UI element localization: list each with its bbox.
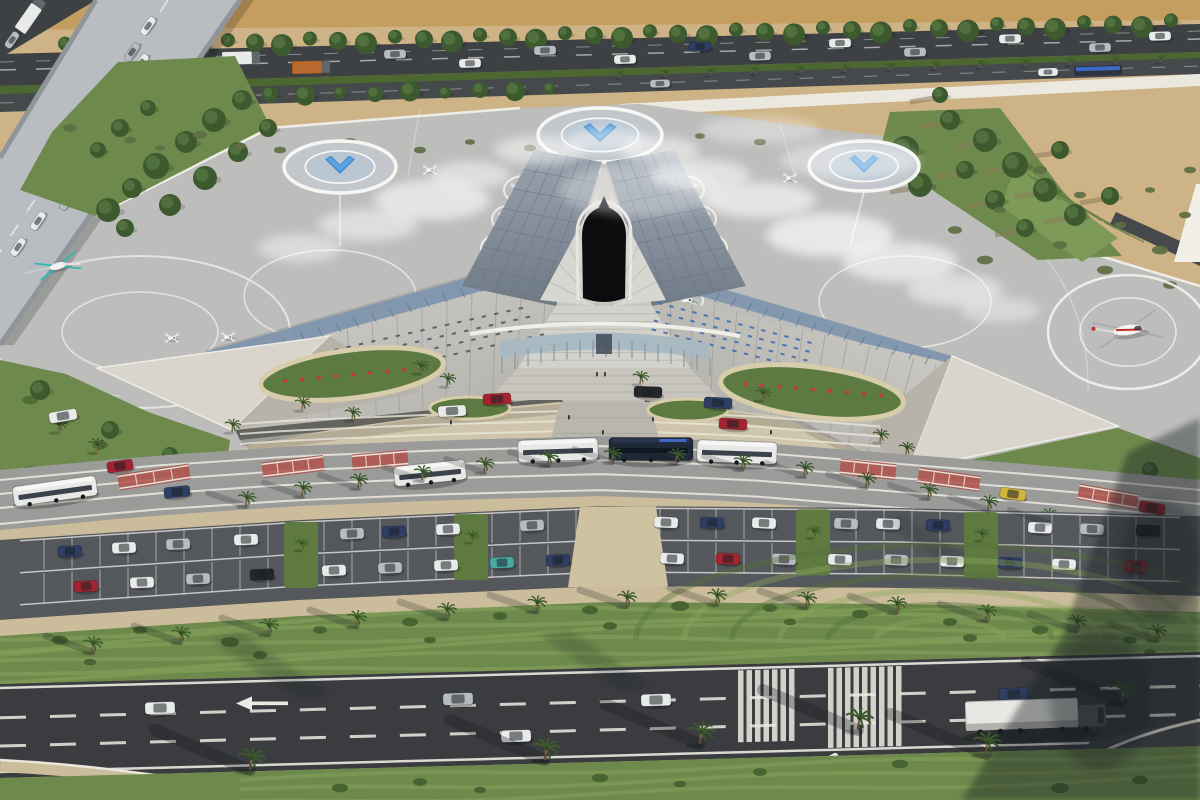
parked-car xyxy=(546,554,573,569)
steam-cloud xyxy=(430,161,510,189)
parked-car xyxy=(234,533,261,548)
bush xyxy=(474,787,486,794)
car xyxy=(614,55,638,67)
bush xyxy=(1053,241,1067,249)
bush xyxy=(784,619,796,626)
bush xyxy=(493,612,507,620)
car xyxy=(534,46,558,58)
parked-car xyxy=(250,568,277,583)
vertiport-aerial-rendering xyxy=(0,0,1200,800)
bush xyxy=(1097,266,1113,275)
parked-car xyxy=(699,517,726,532)
parked-car xyxy=(436,523,463,538)
zebra-crossing xyxy=(828,666,902,748)
parked-car xyxy=(166,538,193,553)
bush xyxy=(977,256,993,265)
car xyxy=(442,692,476,708)
parked-car xyxy=(715,553,742,568)
car xyxy=(1038,68,1060,79)
bush xyxy=(274,147,286,154)
bush xyxy=(892,760,908,769)
car xyxy=(829,38,853,50)
car xyxy=(640,693,674,709)
parking-walkway xyxy=(568,506,668,587)
parked-car xyxy=(186,573,213,588)
steam-cloud xyxy=(560,164,720,216)
solar-roof-bus xyxy=(1074,65,1122,76)
bush xyxy=(603,622,617,630)
bush xyxy=(1145,187,1155,193)
bush xyxy=(234,143,246,150)
bush xyxy=(332,784,348,793)
bush xyxy=(465,139,475,145)
bush xyxy=(424,637,436,644)
parked-car xyxy=(520,519,547,534)
central-void xyxy=(582,206,626,302)
parked-car xyxy=(659,552,686,567)
car xyxy=(689,42,713,54)
bush xyxy=(193,131,207,139)
bush xyxy=(1033,166,1047,174)
car xyxy=(999,34,1023,46)
car xyxy=(459,58,483,70)
bush xyxy=(1152,246,1168,255)
bush xyxy=(124,137,136,144)
steam-cloud xyxy=(700,116,820,144)
bush xyxy=(943,618,957,626)
bush xyxy=(1114,222,1126,229)
bush xyxy=(414,147,426,154)
car xyxy=(650,79,672,90)
parked-car xyxy=(833,518,860,533)
parked-car xyxy=(322,564,349,579)
steam-cloud xyxy=(258,234,342,262)
truck xyxy=(292,60,330,74)
steam-cloud xyxy=(620,137,700,163)
parked-car xyxy=(382,526,409,541)
bush xyxy=(1179,212,1191,219)
car xyxy=(384,49,408,61)
parked-car xyxy=(653,516,680,531)
car xyxy=(749,51,773,63)
parked-car xyxy=(74,580,101,595)
parked-car xyxy=(434,559,461,574)
bush xyxy=(1032,626,1048,635)
parked-car xyxy=(378,562,405,577)
steam-cloud xyxy=(704,182,816,218)
bush xyxy=(852,610,868,619)
bush xyxy=(155,145,165,151)
bush xyxy=(402,618,418,627)
bush xyxy=(582,606,598,615)
car xyxy=(904,47,928,59)
helipad xyxy=(284,141,396,193)
parked-car xyxy=(58,545,85,560)
bush xyxy=(753,768,767,776)
parked-car xyxy=(751,517,778,532)
bush xyxy=(674,781,686,788)
bush xyxy=(313,626,327,634)
steam-cloud xyxy=(960,297,1040,323)
car xyxy=(144,701,178,717)
parking-island xyxy=(284,522,318,588)
bush xyxy=(763,604,777,612)
parked-car xyxy=(130,576,157,591)
car xyxy=(633,386,664,401)
bush xyxy=(1184,167,1196,174)
steam-cloud xyxy=(780,142,920,178)
entrance-door xyxy=(596,334,612,354)
bush xyxy=(1074,192,1086,199)
car xyxy=(1149,31,1173,43)
parked-car xyxy=(340,527,367,542)
bush xyxy=(994,207,1006,214)
parked-car xyxy=(112,542,139,557)
bush xyxy=(63,124,77,132)
bush xyxy=(413,778,427,786)
car xyxy=(1089,43,1113,55)
aerial-render-canvas xyxy=(0,0,1200,800)
bush xyxy=(671,601,689,611)
bush xyxy=(84,659,96,666)
bush xyxy=(592,774,608,783)
bush xyxy=(948,226,962,234)
parked-car xyxy=(490,557,517,572)
bush xyxy=(963,634,977,642)
